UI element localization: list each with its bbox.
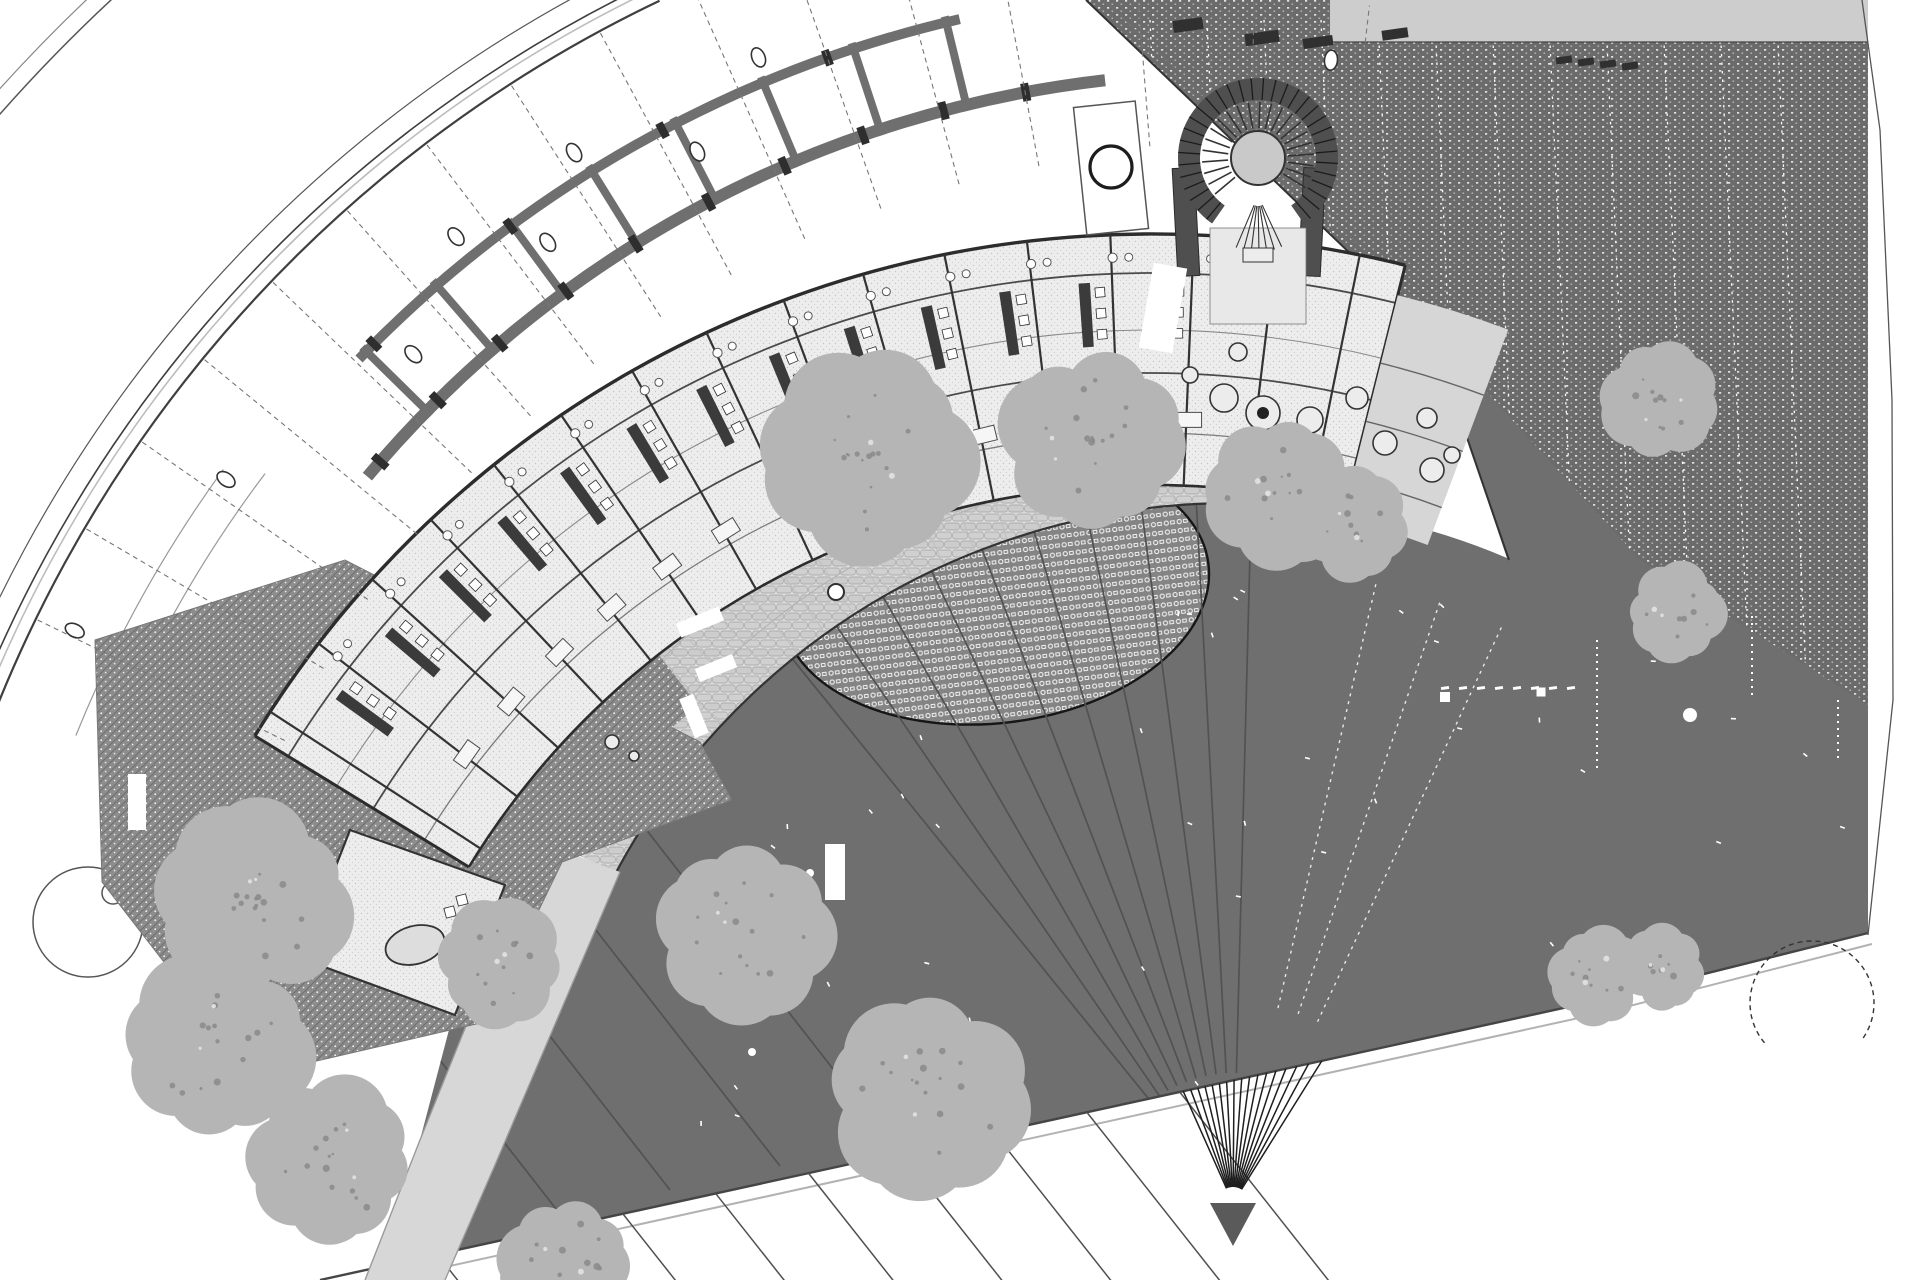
site-plan-page: [0, 0, 1920, 1280]
site-plan-drawing: [0, 0, 1920, 1280]
